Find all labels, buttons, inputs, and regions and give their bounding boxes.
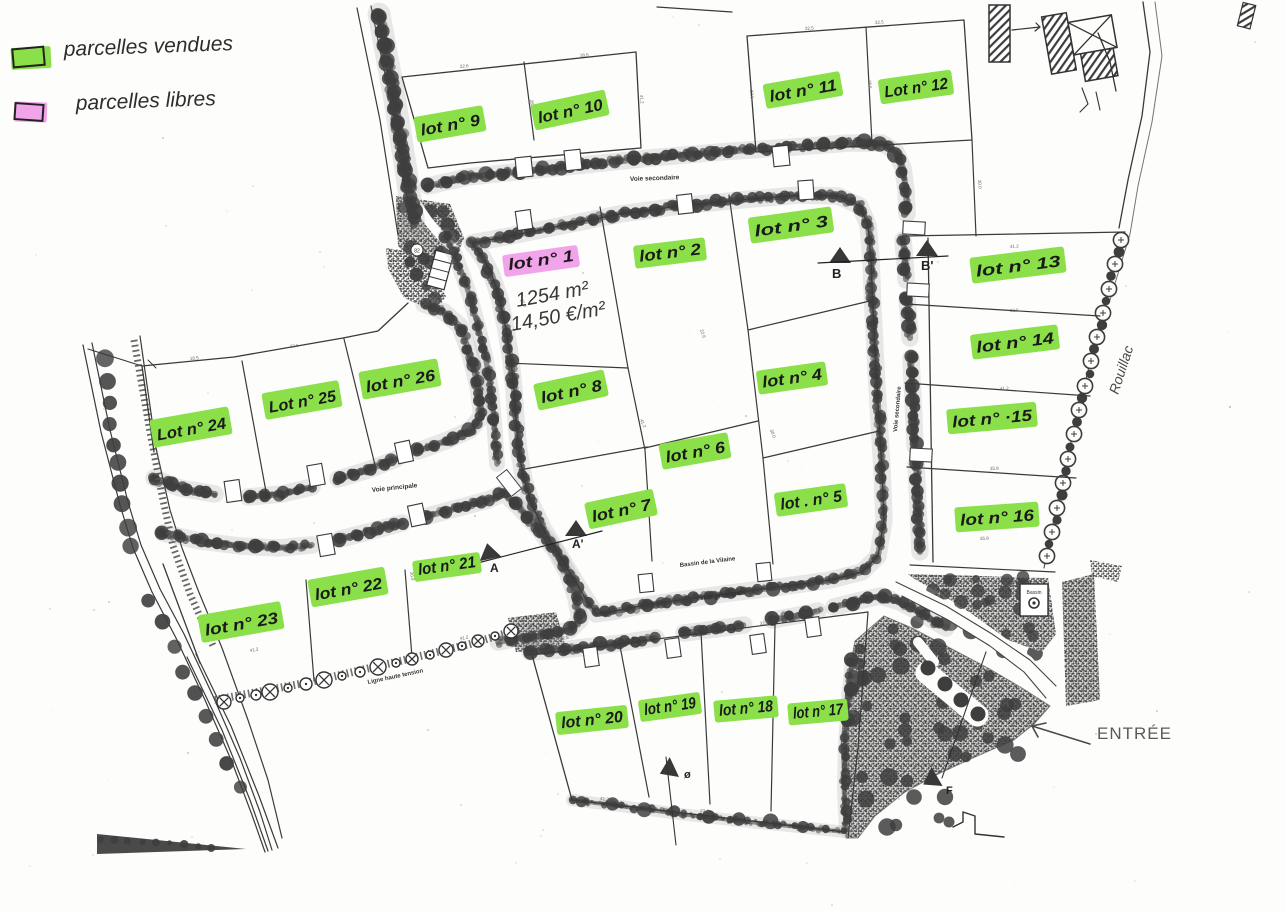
svg-text:35.8: 35.8 <box>990 466 999 471</box>
svg-text:Bassin: Bassin <box>1026 590 1041 596</box>
svg-text:41.2: 41.2 <box>1010 244 1019 249</box>
svg-text:22.6: 22.6 <box>700 808 710 814</box>
svg-text:82: 82 <box>414 249 420 255</box>
svg-text:41.2: 41.2 <box>639 95 645 105</box>
svg-text:41.2: 41.2 <box>1000 386 1009 391</box>
svg-text:18.5: 18.5 <box>580 52 590 58</box>
svg-text:32.5: 32.5 <box>805 25 815 31</box>
svg-text:ø: ø <box>684 769 691 781</box>
svg-text:A: A <box>490 561 499 575</box>
svg-text:22.6: 22.6 <box>460 63 470 69</box>
svg-text:18.5: 18.5 <box>867 80 873 90</box>
svg-text:32.5: 32.5 <box>1010 308 1019 313</box>
svg-text:A': A' <box>572 537 584 551</box>
svg-text:B: B <box>832 266 841 281</box>
svg-text:32.5: 32.5 <box>875 19 885 25</box>
svg-text:B': B' <box>921 258 933 273</box>
svg-text:22.6: 22.6 <box>749 90 755 100</box>
svg-text:30.0: 30.0 <box>977 180 983 190</box>
svg-text:35.8: 35.8 <box>980 536 989 541</box>
svg-text:18.5: 18.5 <box>190 355 200 361</box>
svg-text:ENTRÉE: ENTRÉE <box>1097 724 1172 743</box>
svg-text:F: F <box>946 785 953 797</box>
svg-text:41.2: 41.2 <box>600 796 610 802</box>
